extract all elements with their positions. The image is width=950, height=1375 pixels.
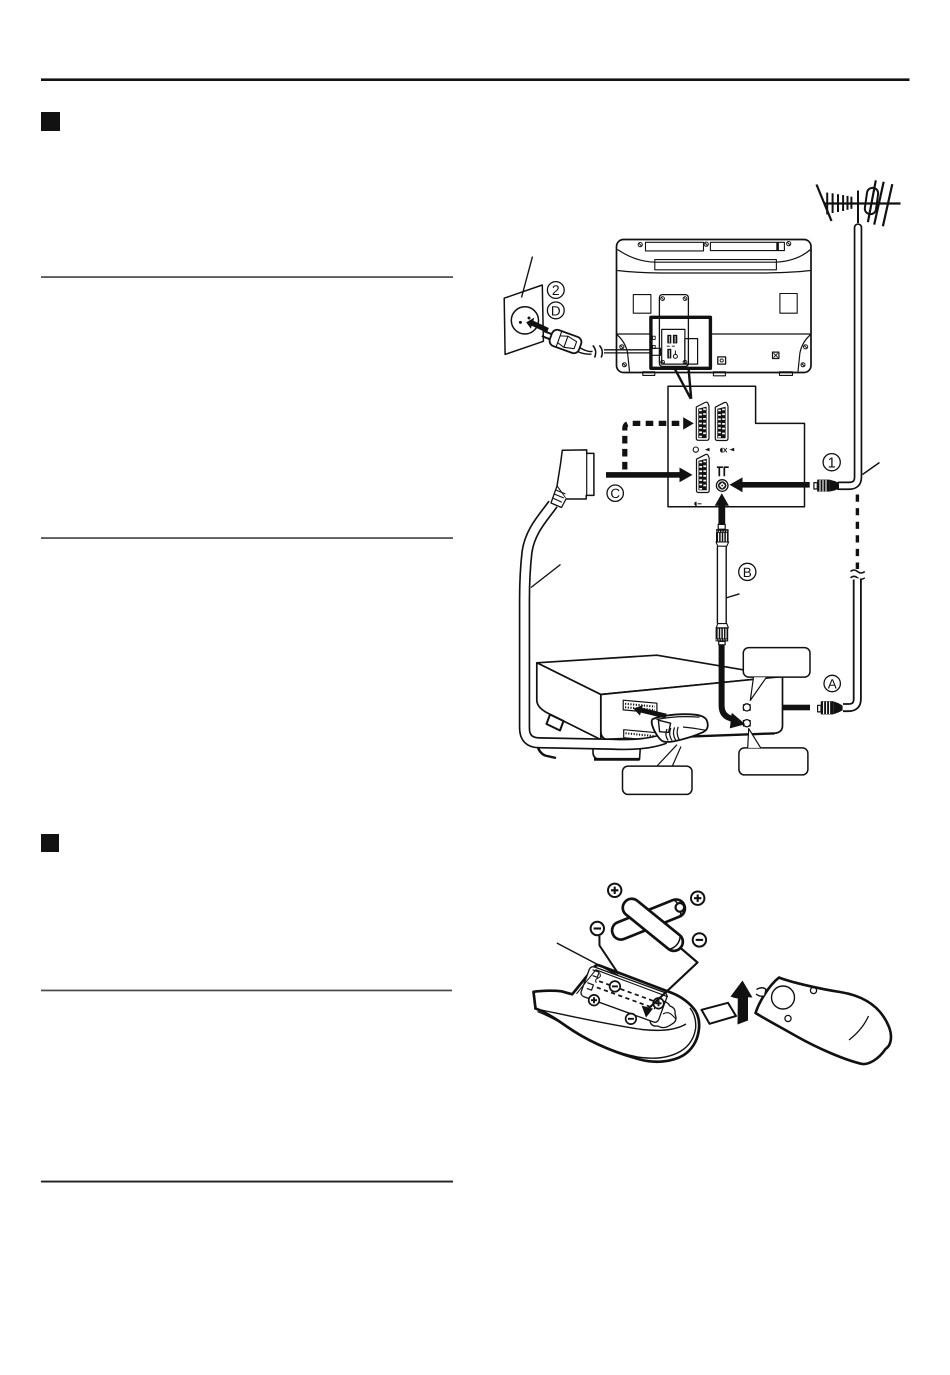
svg-text:A: A	[828, 676, 837, 691]
svg-text:B: B	[743, 565, 752, 580]
svg-text:D: D	[551, 303, 561, 318]
svg-text:2: 2	[552, 282, 560, 298]
svg-text:1: 1	[828, 455, 836, 471]
svg-text:C: C	[610, 486, 620, 501]
